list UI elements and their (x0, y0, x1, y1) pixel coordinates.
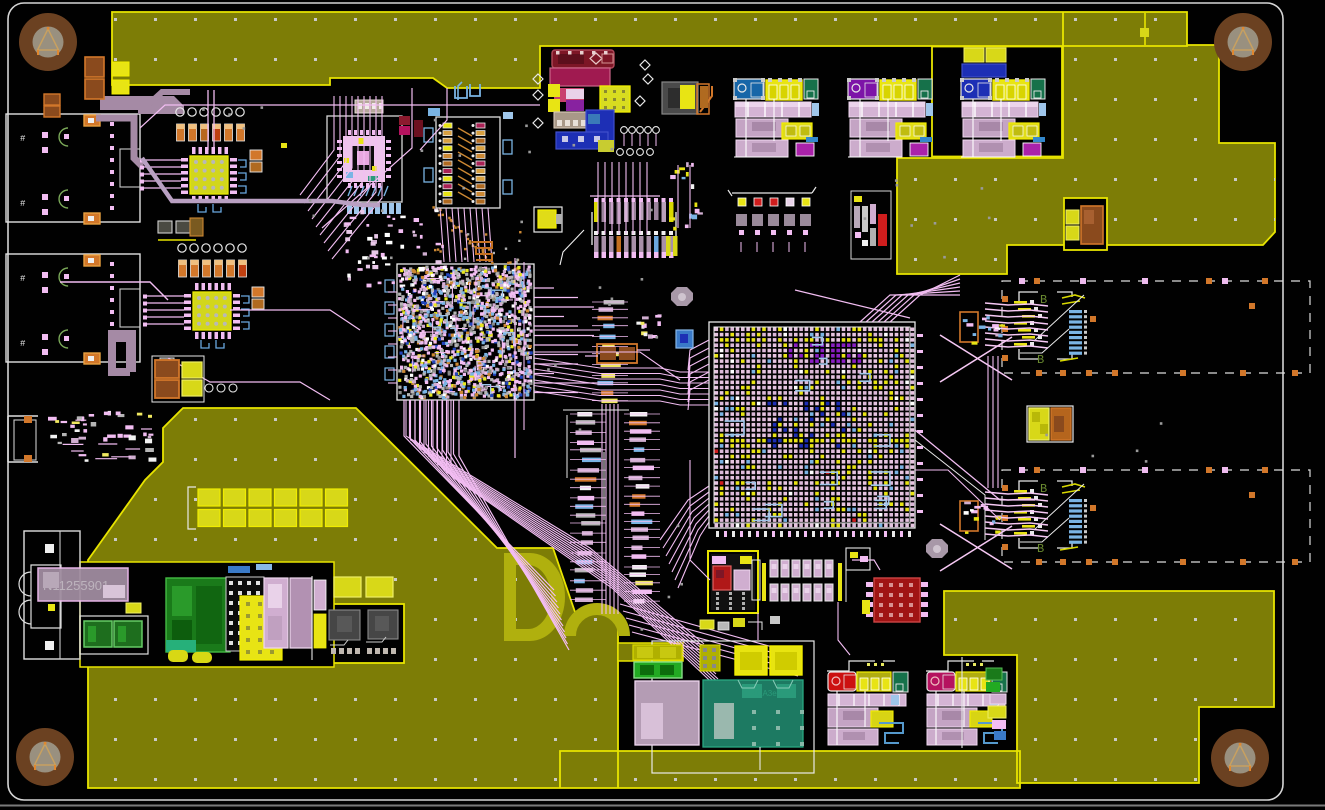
svg-text:#: # (20, 339, 26, 349)
svg-text:#: # (20, 134, 26, 144)
svg-text:#: # (20, 274, 26, 284)
svg-text:+CA3e0: +CA3e0 (752, 689, 782, 698)
svg-text:#: # (20, 199, 26, 209)
svg-text:B: B (1037, 542, 1044, 556)
svg-text:B: B (1037, 353, 1044, 367)
